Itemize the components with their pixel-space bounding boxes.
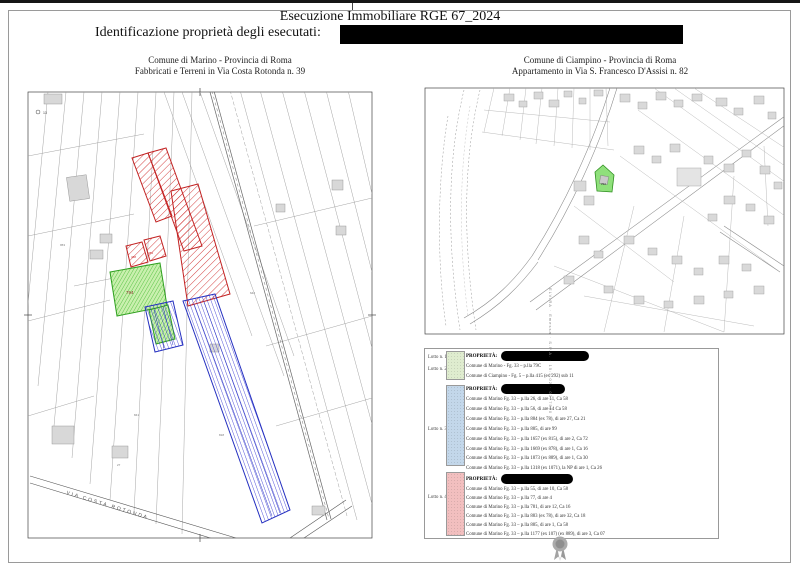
- legend-group-3: PROPRIETÀ: Comune di Marino Fg. 33 – p.l…: [466, 473, 714, 539]
- legend: Lotto n. 1 Lotto n. 2 Lotto n. 3 Lotto n…: [424, 348, 719, 539]
- legend-line: Comune di Marino Fg. 33 – p.lla 883 (ex …: [466, 512, 714, 521]
- svg-text:841: 841: [134, 413, 139, 417]
- legend-line: Comune di Marino Fg. 33 – p.lla 1177 (ex…: [466, 530, 714, 539]
- legend-group-2: PROPRIETÀ: Comune di Marino Fg. 33 – p.l…: [466, 383, 714, 474]
- lot-label-2: Lotto n. 2: [428, 367, 447, 372]
- svg-text:642: 642: [250, 291, 255, 295]
- svg-text:388: 388: [131, 255, 136, 259]
- svg-text:953: 953: [60, 243, 65, 247]
- lot-label-4: Lotto n. 4: [428, 495, 447, 500]
- green-parcel-label: 794: [126, 290, 134, 295]
- lot-label-1: Lotto n. 1: [428, 355, 447, 360]
- corner-label: 13: [43, 111, 47, 115]
- legend-swatch-red: [446, 472, 465, 536]
- left-map-header-line1: Comune di Marino - Provincia di Roma: [60, 55, 380, 66]
- right-map-header: Comune di Ciampino - Provincia di Roma A…: [430, 55, 770, 77]
- seal-ribbon-icon: [545, 533, 575, 563]
- left-map-header-line2: Fabbricati e Terreni in Via Costa Rotond…: [60, 66, 380, 77]
- legend-line: Comune di Marino Fg. 33 – p.lla 77, di a…: [466, 494, 714, 503]
- left-map-header: Comune di Marino - Provincia di Roma Fab…: [60, 55, 380, 77]
- page-title: Esecuzione Immobiliare RGE 67_2024: [90, 9, 690, 25]
- right-map-header-line1: Comune di Ciampino - Provincia di Roma: [430, 55, 770, 66]
- redaction-bar: [340, 25, 683, 44]
- svg-text:818: 818: [219, 433, 224, 437]
- legend-line: Comune di Marino Fg. 33 – p.lla 1657 (ex…: [466, 435, 714, 445]
- green-parcel-label: 292: [601, 182, 606, 186]
- redaction-pill: [501, 474, 573, 484]
- legend-line: Comune di Marino Fg. 33 – p.lla 885, di …: [466, 425, 714, 435]
- legend-line: Comune di Marino Fg. 33 – p.lla 1873 (ex…: [466, 454, 714, 464]
- signature-watermark: ELVIRA · Emessa · S.P.A. · 15:2:02 · 037…: [545, 288, 553, 546]
- legend-swatch-blue: [446, 385, 465, 466]
- document-page: Esecuzione Immobiliare RGE 67_2024 Ident…: [0, 0, 800, 565]
- legend-line: Comune di Marino Fg. 33 – p.lla 885, di …: [466, 521, 714, 530]
- svg-text:389: 389: [148, 251, 153, 255]
- right-cadastral-map: 292: [424, 86, 786, 336]
- legend-line: Comune di Marino Fg. 33 – p.lla 26, di a…: [466, 395, 714, 405]
- legend-swatch-green: [446, 351, 465, 380]
- legend-group-3-header: PROPRIETÀ:: [466, 477, 497, 482]
- legend-group-1-header: PROPRIETÀ:: [466, 354, 497, 359]
- legend-line: Comune di Marino Fg. 33 – p.lla 55, di a…: [466, 485, 714, 494]
- legend-line: Comune di Marino Fg. 33 – p.lla 1669 (ex…: [466, 445, 714, 455]
- left-cadastral-map: 794 642 953 841 818 27 388 389 13 VIA CO…: [14, 86, 390, 552]
- right-map-header-line2: Appartamento in Via S. Francesco D'Assis…: [430, 66, 770, 77]
- legend-line: Comune di Marino - Fg. 33 – p.lla 79C: [466, 362, 714, 372]
- top-rule: [0, 0, 800, 3]
- redaction-pill: [501, 384, 565, 394]
- legend-line: Comune di Marino Fg. 33 – p.lla 884 (ex …: [466, 415, 714, 425]
- legend-line: Comune di Marino Fg. 33 – p.lla 781, di …: [466, 503, 714, 512]
- svg-text:27: 27: [117, 463, 121, 467]
- legend-group-2-header: PROPRIETÀ:: [466, 387, 497, 392]
- legend-line: Comune di Ciampino - Fg. 5 – p.lla 415 (…: [466, 372, 714, 382]
- legend-group-1: PROPRIETÀ: Comune di Marino - Fg. 33 – p…: [466, 350, 714, 382]
- legend-line: Comune di Marino Fg. 33 – p.lla 56, di a…: [466, 405, 714, 415]
- page-subtitle: Identificazione proprietà degli esecutat…: [95, 25, 321, 41]
- lot-label-3: Lotto n. 3: [428, 427, 447, 432]
